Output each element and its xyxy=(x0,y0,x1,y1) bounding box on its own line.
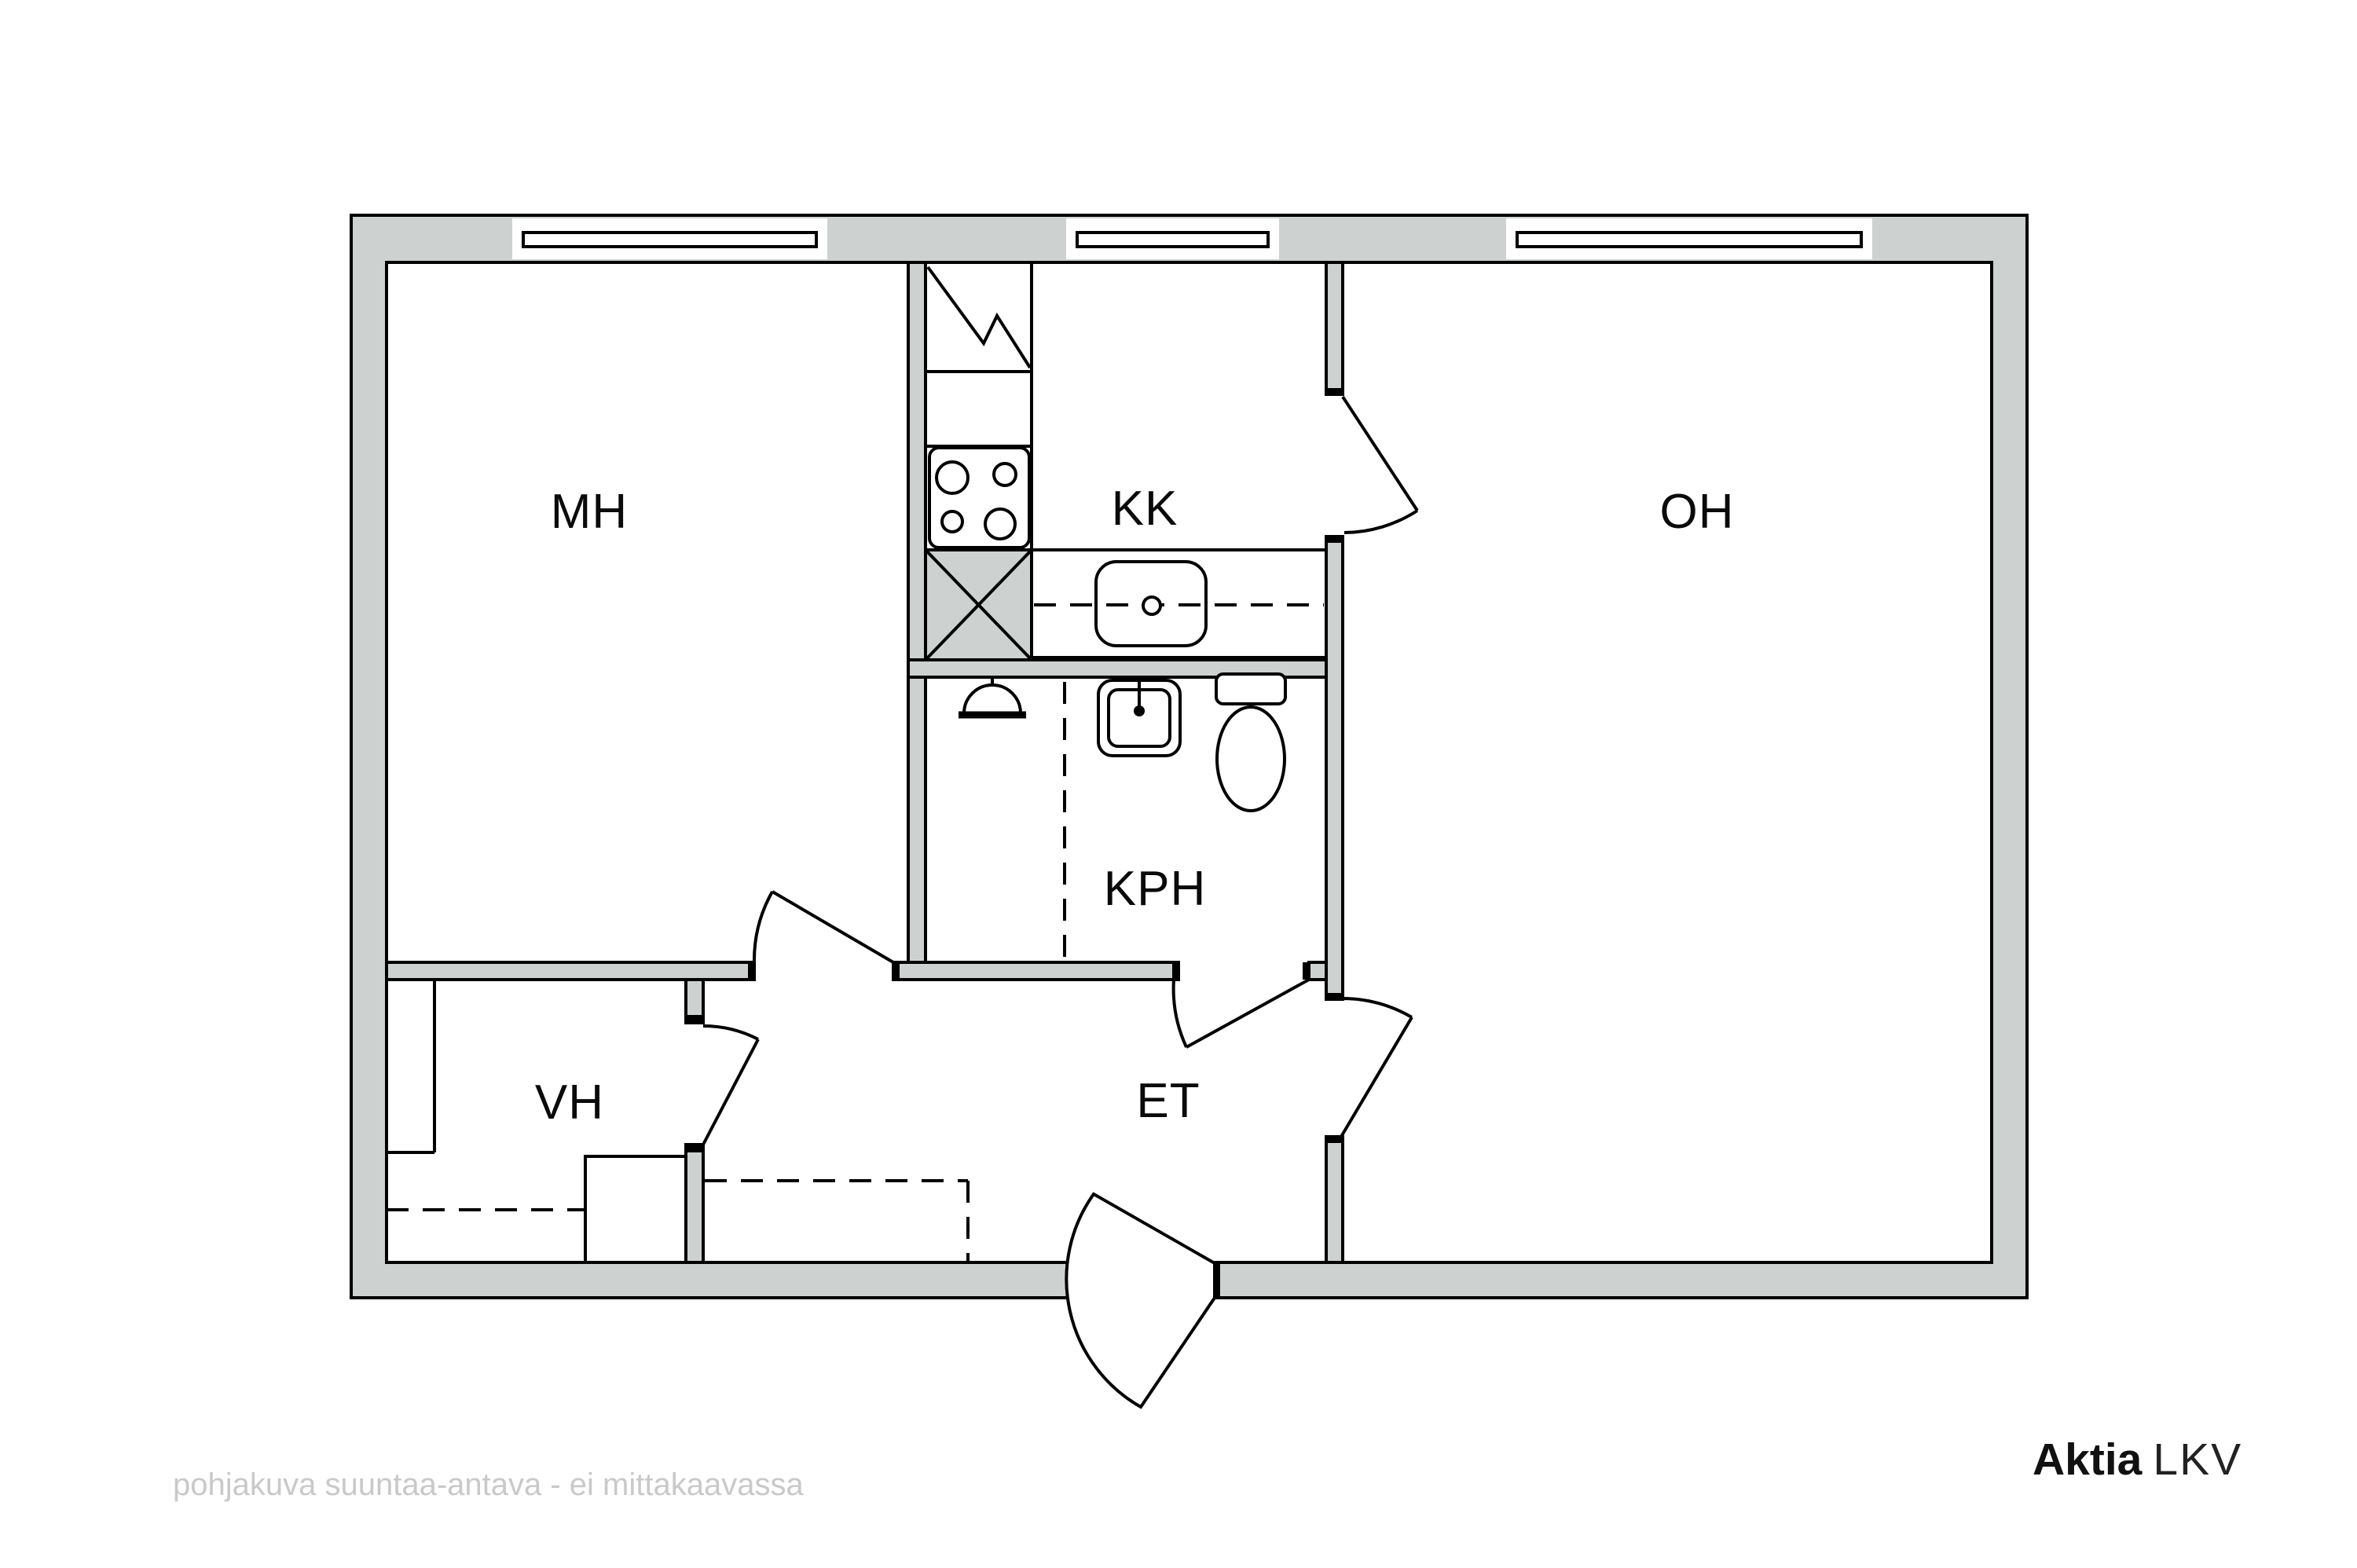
room-label-oh: OH xyxy=(1660,485,1735,539)
brand-logo-light: LKV xyxy=(2153,1434,2242,1485)
wall-kk-oh-lower xyxy=(1326,537,1343,999)
room-label-vh: VH xyxy=(535,1075,604,1130)
room-label-kph: KPH xyxy=(1104,862,1206,916)
sink-drain-icon xyxy=(1143,597,1160,614)
room-label-mh: MH xyxy=(551,485,628,539)
wall-et-oh xyxy=(1326,1137,1343,1262)
wall-kph-et xyxy=(893,962,1178,980)
cabinet-box xyxy=(585,1156,686,1262)
window-mh xyxy=(512,218,827,259)
wall-vh-et-lower xyxy=(686,1145,703,1262)
window-oh xyxy=(1506,218,1872,259)
wall-kk-oh-upper xyxy=(1326,262,1343,394)
toilet-icon xyxy=(1216,674,1285,811)
wall-mh-kk xyxy=(908,262,926,980)
window-kk xyxy=(1066,218,1279,259)
room-label-kk: KK xyxy=(1112,482,1178,536)
brand-logo: AktiaLKV xyxy=(2033,1434,2242,1485)
floor-plan-page: MH KK OH KPH VH ET pohjakuva suuntaa-ant… xyxy=(0,0,2357,1568)
kitchen-worktop-block xyxy=(926,550,1032,660)
disclaimer-text: pohjakuva suuntaa-antava - ei mittakaava… xyxy=(173,1467,804,1502)
room-label-et: ET xyxy=(1136,1074,1200,1128)
washbasin-icon xyxy=(1098,677,1180,756)
wall-kph-corner xyxy=(1309,962,1326,980)
floor-plan-canvas: MH KK OH KPH VH ET pohjakuva suuntaa-ant… xyxy=(0,0,2357,1568)
brand-logo-bold: Aktia xyxy=(2033,1434,2143,1485)
wall-mh-vh xyxy=(387,962,754,980)
